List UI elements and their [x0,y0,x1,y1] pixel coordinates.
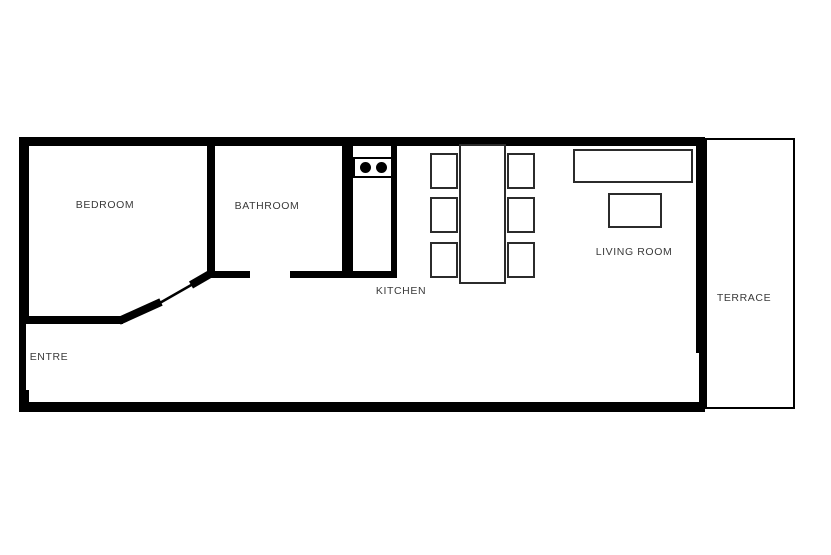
dining-chair [430,153,458,189]
wall-bedroom-bottom [19,316,123,324]
wall-bathroom-bottom-right [290,271,352,278]
room-label-living-room: LIVING ROOM [596,246,673,258]
dining-chair [507,197,535,233]
coffee-table [608,193,662,228]
stove-icon [353,157,393,178]
dining-table [459,144,506,284]
wall-bedroom-bathroom [207,146,215,273]
room-label-kitchen: KITCHEN [376,285,426,297]
wall-left-upper [19,137,29,318]
wall-top [19,137,705,146]
room-label-bedroom: BEDROOM [76,199,134,211]
floor-plan: BEDROOM BATHROOM KITCHEN LIVING ROOM TER… [0,0,831,555]
room-label-bathroom: BATHROOM [235,200,300,212]
dining-chair [430,197,458,233]
stove-burner-icon [376,162,387,173]
wall-bottom [19,402,705,412]
wall-right-upper [696,137,705,353]
dining-chair [430,242,458,278]
dining-chair [507,242,535,278]
bedroom-angled-wall [119,302,161,321]
wall-bathroom-bottom-left [207,271,250,278]
bedroom-door-leaf [158,280,200,304]
stove-burner-icon [360,162,371,173]
dining-chair [507,153,535,189]
terrace-area [705,138,795,409]
wall-left-mid [19,318,26,390]
sofa [573,149,693,183]
room-label-terrace: TERRACE [717,292,771,304]
room-label-entre: ENTRE [30,351,69,363]
